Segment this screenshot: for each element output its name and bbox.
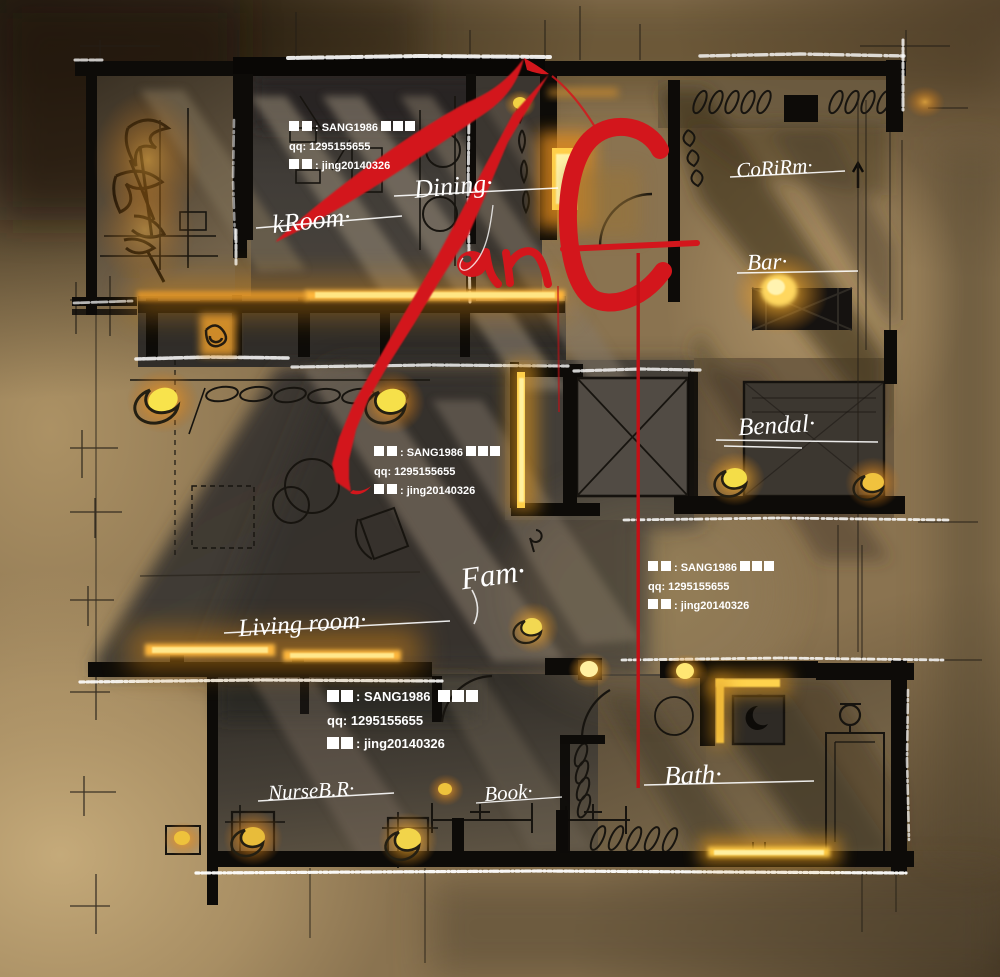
svg-text:: SANG1986: : SANG1986	[674, 562, 737, 574]
svg-text:: SANG1986: : SANG1986	[315, 122, 378, 134]
svg-text:qq: 1295155655: qq: 1295155655	[289, 141, 370, 153]
svg-text:: jing20140326: : jing20140326	[315, 160, 390, 172]
svg-text:: jing20140326: : jing20140326	[356, 736, 445, 751]
svg-text:Bar·: Bar·	[747, 249, 788, 275]
svg-text:: SANG1986: : SANG1986	[356, 689, 430, 704]
svg-text:qq: 1295155655: qq: 1295155655	[327, 713, 423, 728]
svg-text:qq: 1295155655: qq: 1295155655	[374, 466, 455, 478]
svg-text:: jing20140326: : jing20140326	[674, 600, 749, 612]
svg-text:: jing20140326: : jing20140326	[400, 485, 475, 497]
svg-text:: SANG1986: : SANG1986	[400, 447, 463, 459]
svg-text:qq: 1295155655: qq: 1295155655	[648, 581, 729, 593]
svg-text:Bath·: Bath·	[664, 759, 723, 791]
svg-text:NurseB.R·: NurseB.R·	[266, 776, 354, 805]
svg-text:Bendal·: Bendal·	[737, 410, 815, 441]
